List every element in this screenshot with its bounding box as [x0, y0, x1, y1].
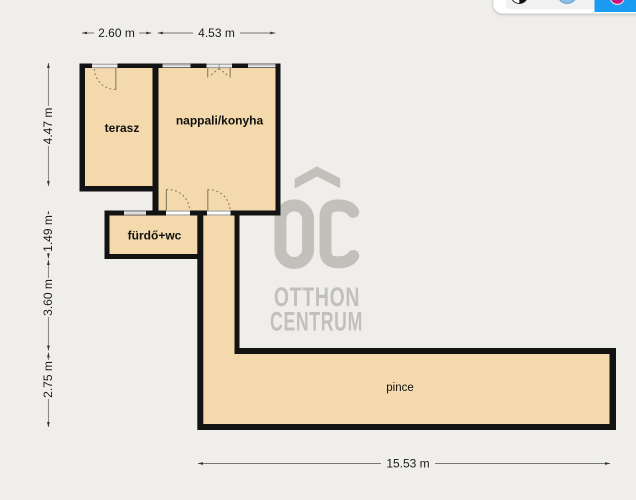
svg-text:terasz: terasz — [105, 121, 140, 135]
svg-text:fürdő+wc: fürdő+wc — [128, 228, 182, 242]
svg-text:pince: pince — [386, 382, 414, 394]
svg-text:2.75 m: 2.75 m — [41, 361, 55, 398]
svg-text:4.53 m: 4.53 m — [198, 26, 235, 40]
svg-text:3.60 m: 3.60 m — [41, 279, 55, 316]
svg-text:4.47 m: 4.47 m — [41, 108, 55, 145]
svg-text:CENTRUM: CENTRUM — [270, 305, 363, 336]
svg-text:nappali/konyha: nappali/konyha — [176, 113, 264, 127]
svg-text:15.53 m: 15.53 m — [386, 457, 429, 471]
svg-text:2.60 m: 2.60 m — [98, 26, 135, 40]
svg-text:1.49 m: 1.49 m — [41, 215, 55, 252]
